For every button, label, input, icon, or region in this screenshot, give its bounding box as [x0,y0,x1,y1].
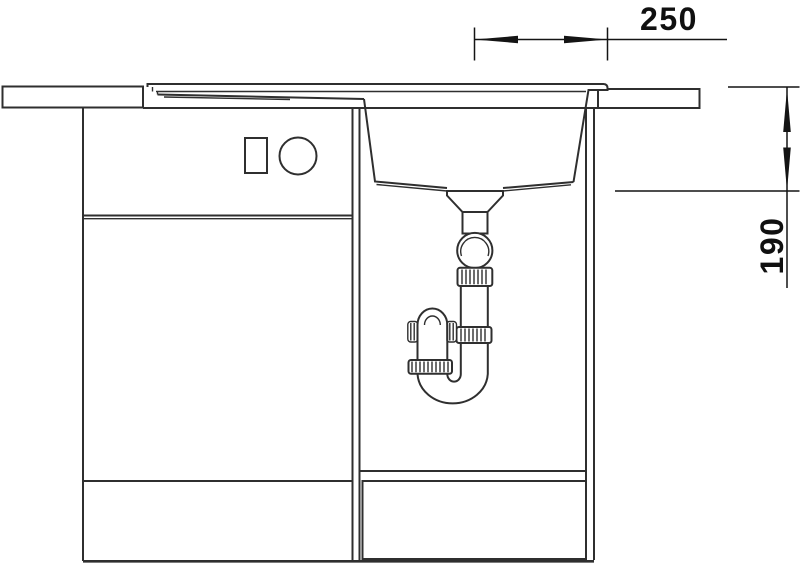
ball-joint [457,233,492,268]
trap-nut-ear-left [408,322,418,343]
union-nut-3 [409,360,453,374]
union-nut-2-ribs [461,329,485,342]
sink-section-drawing: 250 190 [0,0,800,563]
technical-drawing-canvas: 250 190 [0,0,800,563]
union-nut-1-ribs [462,270,486,285]
trap-riser-body [419,322,447,360]
drain-tailpiece [463,212,488,234]
union-nut-2 [457,327,492,343]
union-nut-1 [458,268,493,286]
vertical-pipe-upper [461,286,488,327]
dimension-label-250: 250 [640,1,698,37]
dimension-label-190: 190 [754,217,790,275]
